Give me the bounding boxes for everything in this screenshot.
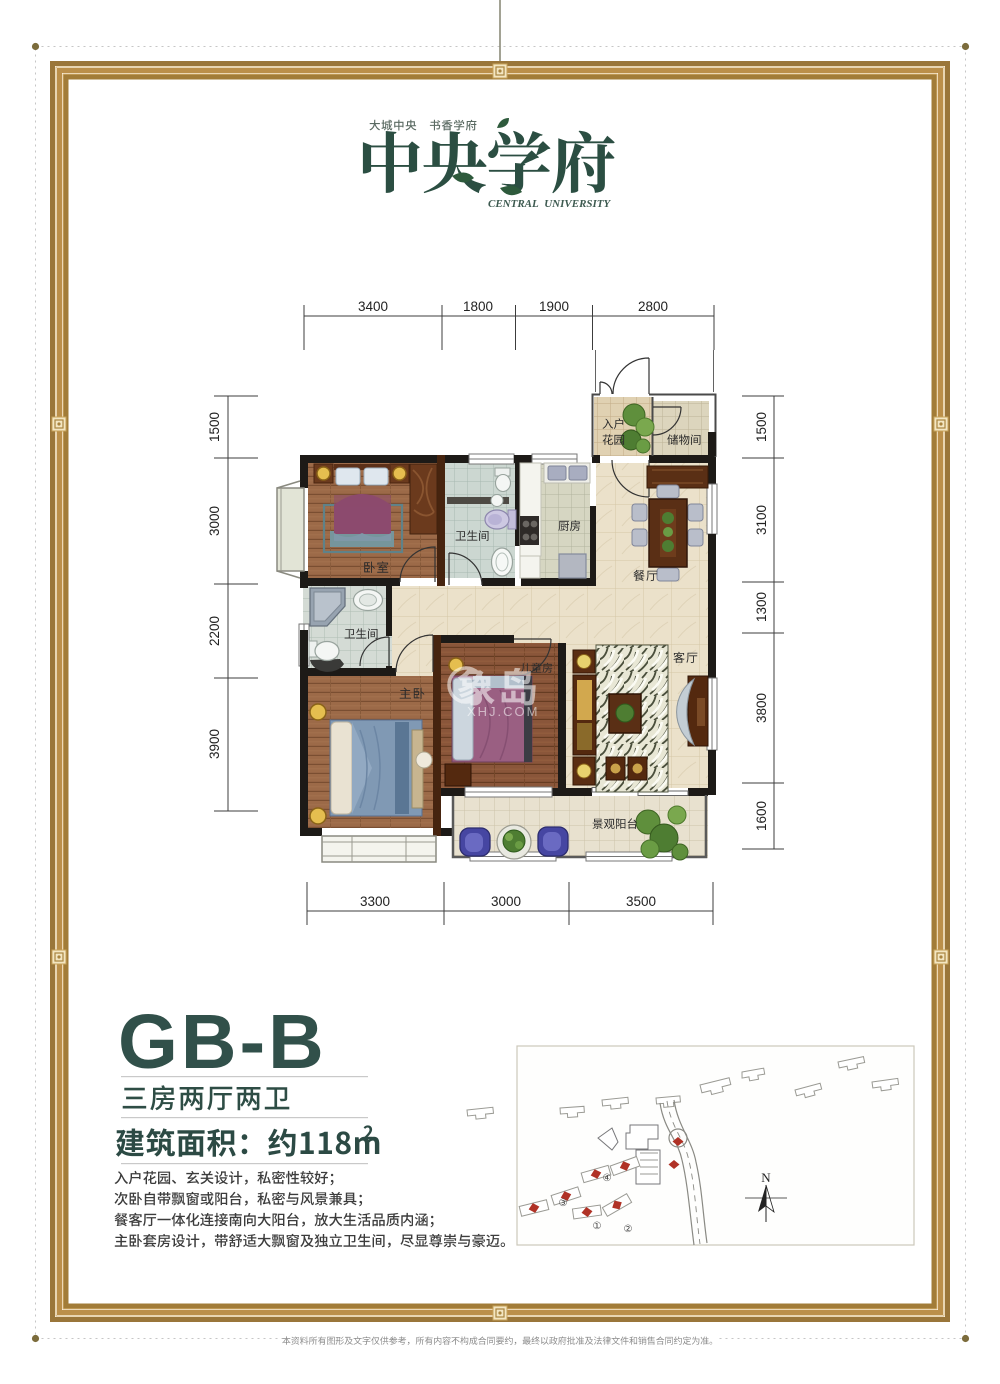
svg-text:N: N <box>761 1170 771 1185</box>
svg-text:3100: 3100 <box>754 505 769 535</box>
svg-text:3000: 3000 <box>207 506 222 536</box>
svg-text:3400: 3400 <box>358 299 388 314</box>
svg-text:XHJ.COM: XHJ.COM <box>467 704 540 719</box>
svg-text:CENTRAL UNIVERSITY: CENTRAL UNIVERSITY <box>488 198 612 210</box>
svg-text:1500: 1500 <box>754 412 769 442</box>
svg-text:1900: 1900 <box>539 299 569 314</box>
svg-text:1500: 1500 <box>207 412 222 442</box>
svg-text:④: ④ <box>603 1173 612 1184</box>
svg-text:3900: 3900 <box>207 729 222 759</box>
svg-text:GB-B: GB-B <box>118 999 327 1085</box>
svg-text:3300: 3300 <box>360 894 390 909</box>
svg-text:1300: 1300 <box>754 592 769 622</box>
svg-text:3500: 3500 <box>626 894 656 909</box>
svg-text:③: ③ <box>559 1198 568 1209</box>
svg-text:①: ① <box>593 1221 602 1232</box>
svg-text:2800: 2800 <box>638 299 668 314</box>
svg-text:3000: 3000 <box>491 894 521 909</box>
svg-text:1600: 1600 <box>754 801 769 831</box>
svg-text:2200: 2200 <box>207 616 222 646</box>
svg-text:3800: 3800 <box>754 693 769 723</box>
svg-text:②: ② <box>624 1224 633 1235</box>
svg-text:1800: 1800 <box>463 299 493 314</box>
